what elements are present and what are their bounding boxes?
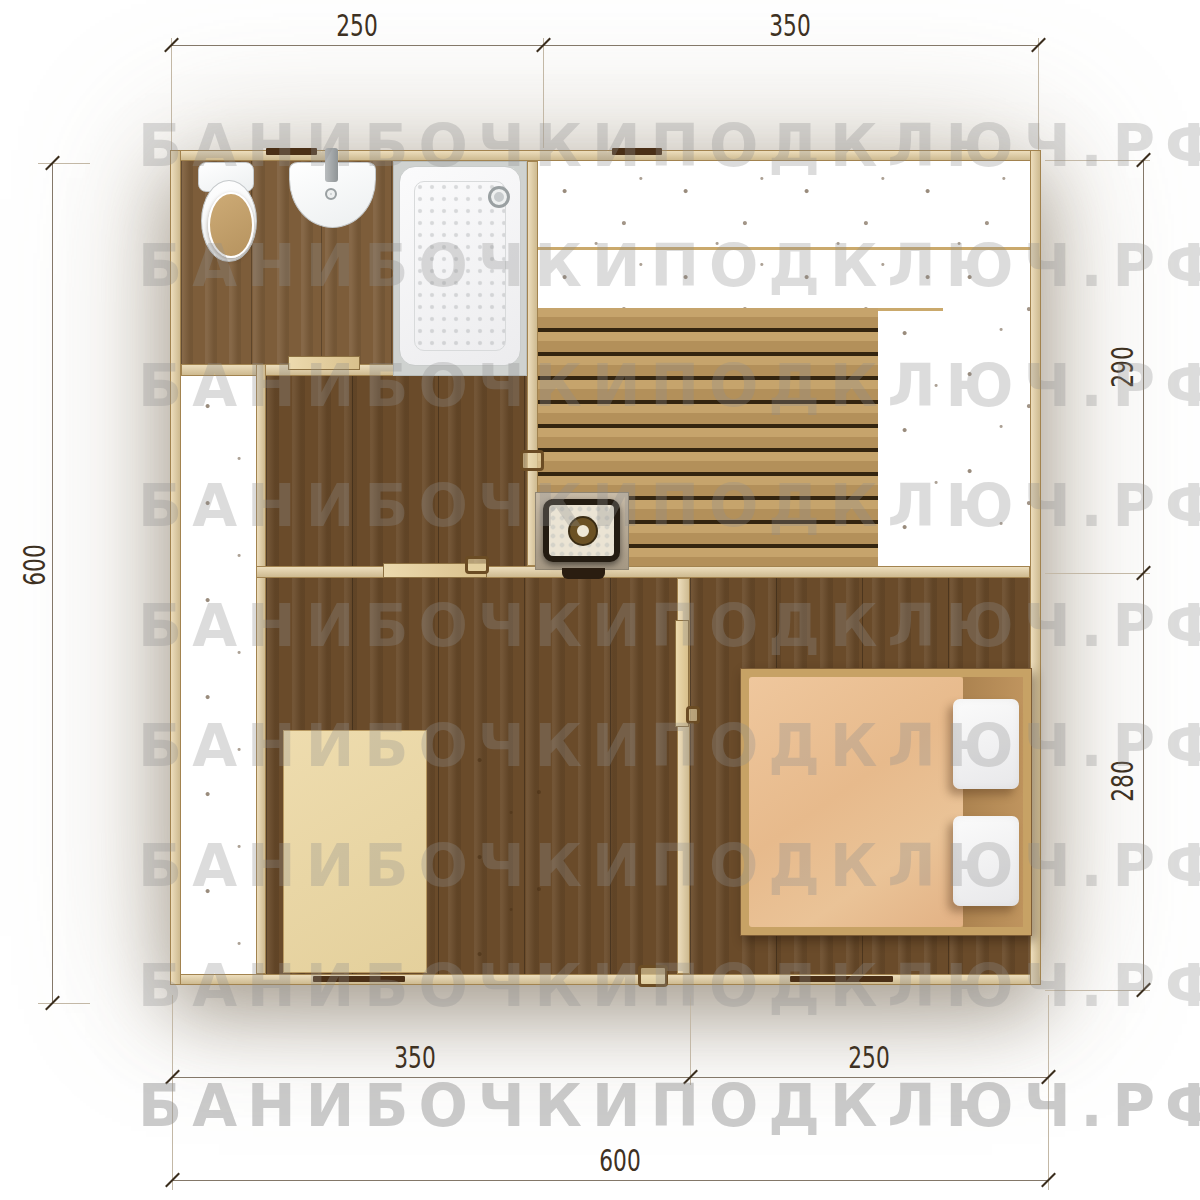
wall-terrace — [256, 364, 266, 974]
stove-hearth — [562, 568, 605, 579]
sauna-bench-upper — [538, 161, 1030, 250]
sauna-bench-right — [943, 247, 1030, 566]
hall-floor — [266, 376, 527, 566]
extension-line — [171, 38, 172, 150]
dim-top-left: 250 — [336, 7, 377, 43]
extension-line — [1045, 573, 1150, 574]
dim-line-top — [171, 45, 1038, 46]
wall-middle — [256, 566, 1030, 578]
extension-line — [38, 163, 90, 164]
bedroom-door-handle-icon — [686, 706, 700, 724]
faucet-icon — [325, 148, 338, 182]
bathroom-door — [288, 356, 360, 370]
window-mark-bottom-right — [790, 976, 893, 982]
bed-blanket — [749, 677, 963, 927]
window-mark-top-right — [612, 148, 662, 155]
sauna-bench-lower — [538, 247, 943, 311]
extension-line — [543, 38, 544, 148]
extension-line — [1038, 38, 1039, 150]
dim-right-bottom: 280 — [1104, 760, 1140, 801]
building-outline — [170, 150, 1041, 985]
toilet-lid-icon — [208, 192, 254, 258]
extension-line — [172, 995, 173, 1190]
dim-line-right — [1143, 160, 1144, 990]
terrace-deck — [181, 376, 256, 974]
entrance-door-handle-icon — [638, 965, 668, 987]
double-bed — [740, 668, 1032, 936]
stove-burner-icon — [570, 518, 596, 544]
pillow-icon — [953, 816, 1019, 906]
extension-line — [1045, 160, 1150, 161]
wall-exterior-bottom — [170, 974, 1041, 985]
extension-line — [1045, 990, 1150, 991]
dim-right-top: 290 — [1104, 346, 1140, 387]
slatted-bench — [453, 730, 547, 973]
dim-line-bottom-inner — [172, 1077, 1048, 1078]
sauna-bench-middle — [878, 303, 943, 566]
sink-drain-icon — [325, 188, 337, 200]
shower-drain-icon — [488, 186, 510, 208]
window-mark-top-left — [266, 148, 317, 155]
dim-left-total: 600 — [16, 544, 52, 585]
dim-top-right: 350 — [769, 7, 810, 43]
dim-line-bottom-total — [172, 1180, 1048, 1181]
floor-plan-image: 250 350 290 280 600 350 250 600 БАНИБОЧК… — [0, 0, 1200, 1200]
wall-exterior-left — [170, 150, 181, 985]
sauna-door-handle-icon — [520, 450, 544, 471]
extension-line — [690, 995, 691, 1085]
extension-line — [1048, 995, 1049, 1190]
hall-main-door-handle-icon — [465, 556, 489, 574]
dim-bottom-total: 600 — [599, 1142, 640, 1178]
dim-bottom-right: 250 — [848, 1039, 889, 1075]
watermark-text: БАНИБОЧКИПОДКЛЮЧ.РФ — [138, 1072, 1138, 1140]
dim-bottom-left: 350 — [394, 1039, 435, 1075]
extension-line — [38, 1003, 90, 1004]
window-mark-bottom-left — [313, 976, 405, 982]
pillow-icon — [953, 699, 1019, 789]
table — [283, 730, 427, 973]
dim-line-left — [52, 163, 53, 1003]
